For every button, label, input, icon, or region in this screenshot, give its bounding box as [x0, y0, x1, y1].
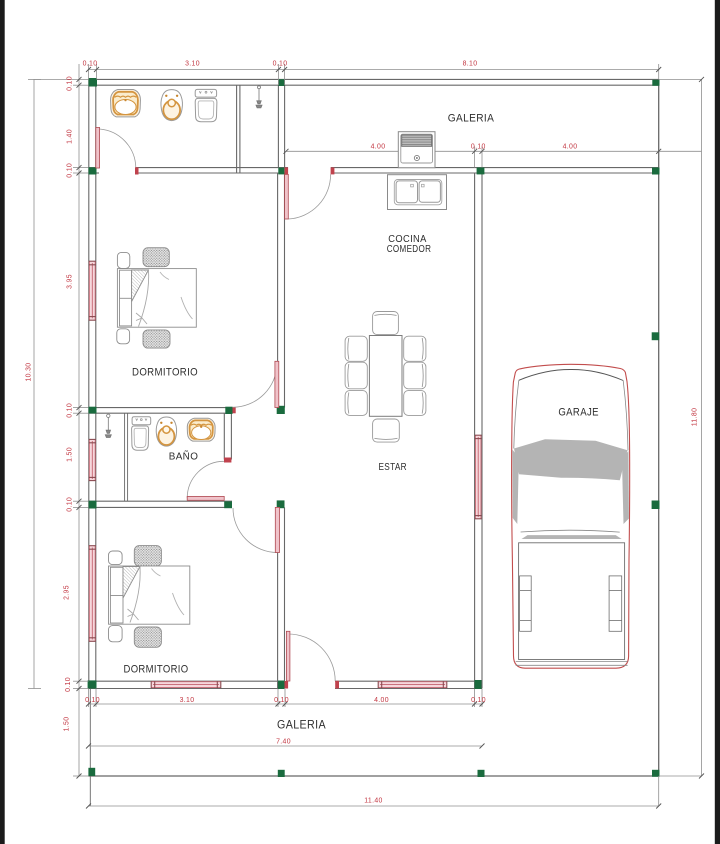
svg-text:GALERIA: GALERIA [448, 113, 495, 125]
svg-text:GARAJE: GARAJE [558, 407, 599, 419]
svg-text:0.10: 0.10 [274, 697, 289, 704]
svg-text:7.40: 7.40 [276, 739, 291, 746]
svg-text:11.40: 11.40 [364, 798, 382, 805]
svg-text:4.00: 4.00 [374, 697, 389, 704]
svg-text:2.95: 2.95 [64, 585, 71, 600]
svg-text:0.10: 0.10 [67, 76, 74, 91]
svg-text:3.10: 3.10 [185, 61, 200, 68]
svg-text:0.10: 0.10 [85, 697, 100, 704]
svg-text:1.50: 1.50 [67, 447, 74, 462]
svg-text:4.00: 4.00 [563, 144, 578, 151]
svg-text:COMEDOR: COMEDOR [387, 244, 432, 255]
svg-text:0.10: 0.10 [83, 61, 98, 68]
svg-text:8.10: 8.10 [463, 61, 478, 68]
svg-text:4.00: 4.00 [371, 144, 386, 151]
svg-text:BAÑO: BAÑO [169, 450, 199, 463]
svg-text:0.10: 0.10 [67, 403, 74, 418]
svg-text:0.10: 0.10 [471, 697, 486, 704]
svg-text:3.10: 3.10 [180, 697, 195, 704]
svg-text:1.40: 1.40 [67, 129, 74, 144]
svg-text:0.10: 0.10 [471, 144, 486, 151]
svg-text:3.95: 3.95 [67, 274, 74, 289]
svg-text:DORMITORIO: DORMITORIO [124, 664, 189, 676]
svg-text:0.10: 0.10 [273, 61, 288, 68]
svg-text:1.50: 1.50 [64, 717, 71, 732]
svg-text:0.10: 0.10 [65, 677, 72, 692]
svg-text:0.10: 0.10 [67, 163, 74, 178]
svg-text:GALERIA: GALERIA [277, 720, 326, 732]
svg-text:ESTAR: ESTAR [378, 462, 407, 473]
svg-text:11.80: 11.80 [692, 408, 699, 426]
svg-text:10.30: 10.30 [26, 363, 33, 382]
svg-text:0.10: 0.10 [67, 497, 74, 512]
svg-text:DORMITORIO: DORMITORIO [132, 367, 198, 379]
